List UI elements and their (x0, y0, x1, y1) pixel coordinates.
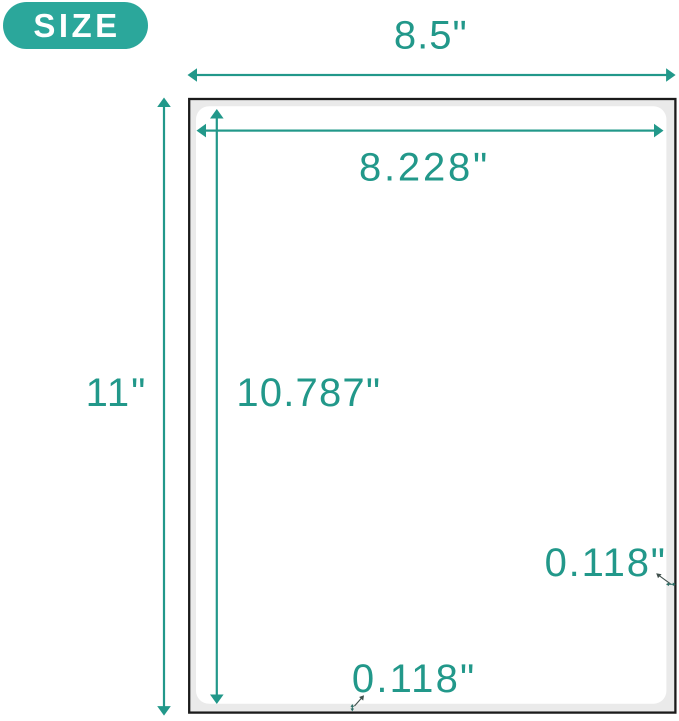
svg-text:8.228": 8.228" (359, 146, 490, 190)
svg-text:10.787": 10.787" (236, 371, 381, 415)
svg-text:8.5": 8.5" (394, 14, 468, 58)
svg-text:11": 11" (86, 371, 148, 415)
svg-text:SIZE: SIZE (33, 7, 120, 44)
svg-text:0.118": 0.118" (545, 541, 667, 585)
svg-text:0.118": 0.118" (352, 657, 477, 701)
